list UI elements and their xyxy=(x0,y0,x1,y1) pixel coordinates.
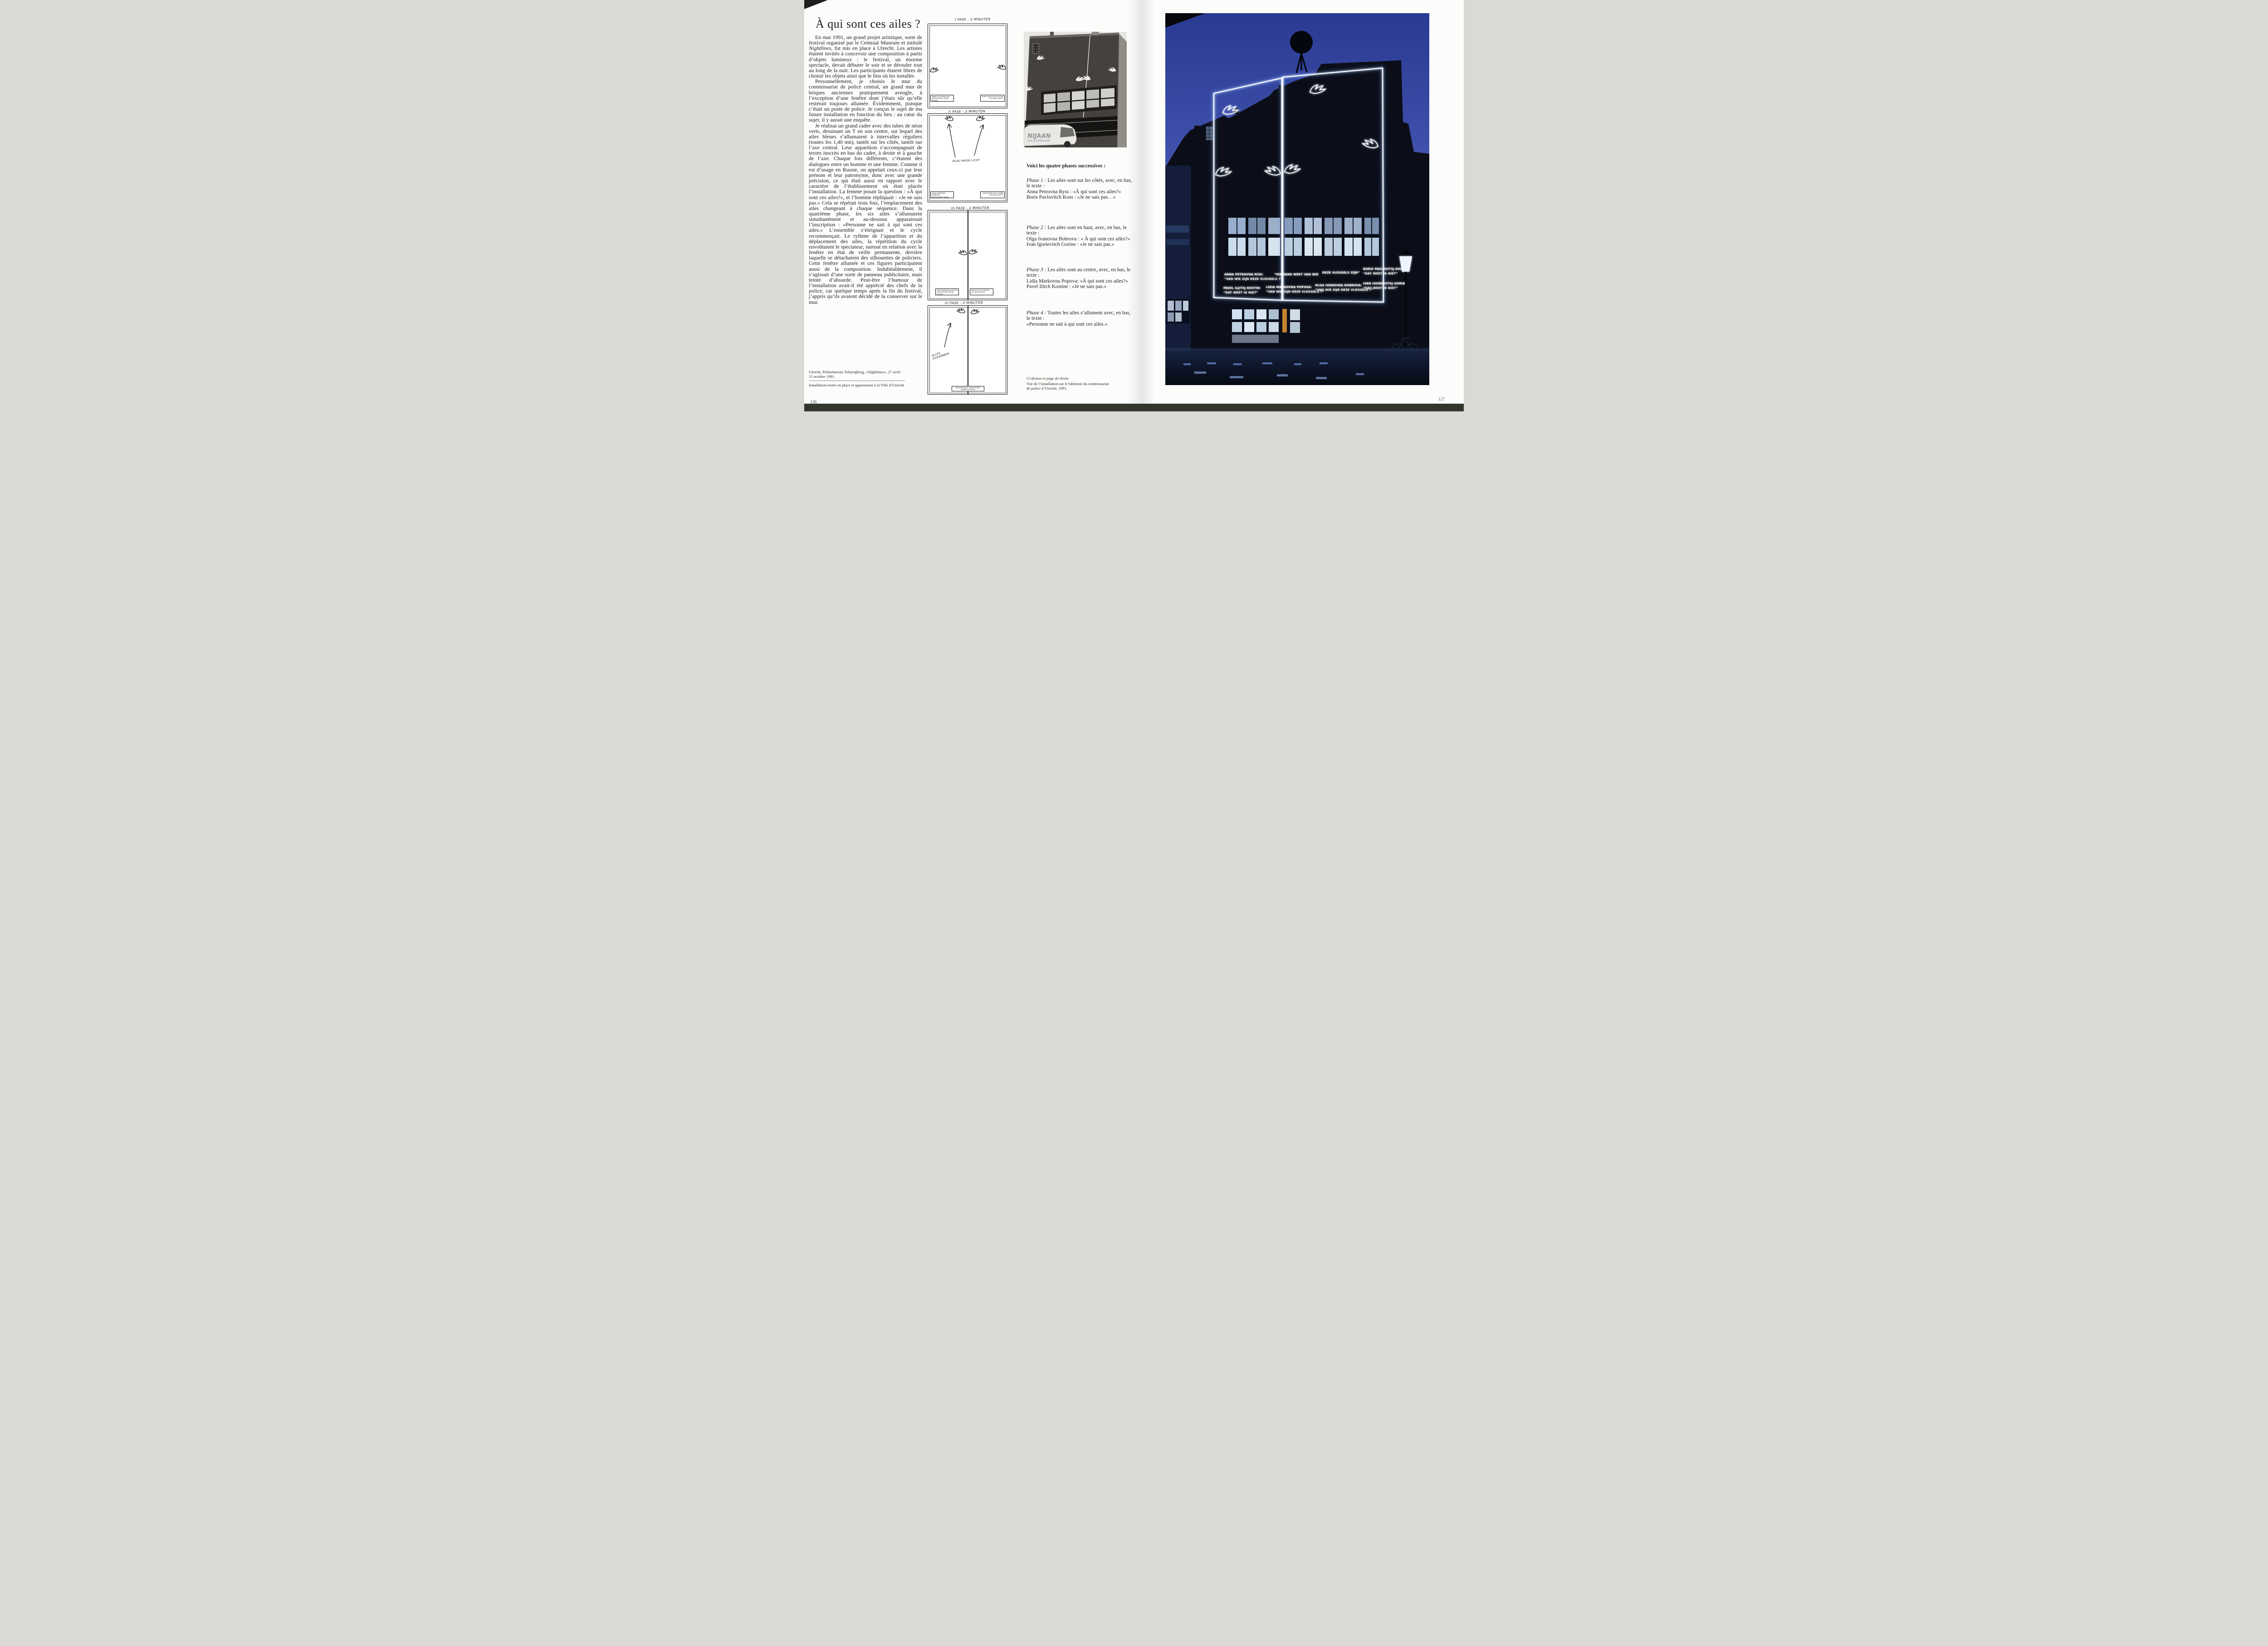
scan-corner xyxy=(804,0,828,9)
sketch2-sign-left: OLGA IVANOVNA BOBROVA WEM GEHÖRT DIESE F… xyxy=(930,191,954,198)
article-paragraph: Je réalisai un grand cadre avec des tube… xyxy=(809,123,922,305)
sketch2-frame: BLAU NEON LICHT OLGA IVANOVNA BOBROVA WE… xyxy=(928,113,1007,202)
phase-line: Lidia Markovna Popova: «À qui sont ces a… xyxy=(1026,278,1134,284)
credit-line: Utrecht, Politiebureau Tolstergbrug, «Ni… xyxy=(809,370,905,381)
phase-2: Phase 2 : Les ailes sont en haut, avec, … xyxy=(1026,225,1134,248)
article-paragraph: Personnellement, je choisis le mur du co… xyxy=(809,78,922,122)
sketch4-center-axis xyxy=(968,306,968,394)
wing-icon xyxy=(976,116,985,121)
phases-heading: Voici les quatre phases successives : xyxy=(1026,163,1134,169)
phase-3: Phase 3 : Les ailes sont au centre, avec… xyxy=(1026,267,1134,290)
sketch4-sign-center: NIEMAND WEIS, WEM GEHÖRT DIESEN FLÜGELN xyxy=(952,386,984,391)
van-sub-text: LEM LICHTREKLAME xyxy=(1027,140,1050,142)
wing-icon xyxy=(971,309,980,314)
caption-lead: Ci-dessus et page de droite xyxy=(1026,376,1110,381)
sketch4-frame: ALLES ZUSAMMEN NIEMAND WEIS, WEM GEHÖRT … xyxy=(928,305,1007,395)
sign-line: WEM GEHÖRT DIESE FLÜGEL xyxy=(932,196,953,198)
phase-line: «Personne ne sait à qui sont ces ailes.» xyxy=(1026,322,1134,327)
page-title: À qui sont ces ailes ? xyxy=(816,17,920,31)
sign-line: NIEMAND WEIS, WEM GEHÖRT DIESEN FLÜGELN xyxy=(953,387,983,391)
scan-edge xyxy=(804,404,1464,411)
sketch3-center-axis xyxy=(968,210,968,300)
sign-line: ICH WEISS NICHT xyxy=(982,194,1003,196)
phase-label: Phase 2 : xyxy=(1026,225,1046,230)
orange-doorway xyxy=(1282,309,1287,332)
wing-icon xyxy=(956,308,965,313)
phases-column: Voici les quatre phases successives : Ph… xyxy=(1026,163,1134,169)
sketch1-sign-right: BORIS PAVLOVITSCH KOSS ICH WEISS NICHT xyxy=(980,95,1005,102)
bw-small-window xyxy=(1033,44,1039,54)
sign-line: WEM GEHÖRT DIESE FLÜGEL xyxy=(932,98,953,102)
sign-text: DEZE VLEUGELS ZIJN” xyxy=(1322,271,1360,274)
street-ground xyxy=(1165,348,1429,385)
article-text: En mai 1991, un grand projet artistique,… xyxy=(809,34,922,305)
wing-icon xyxy=(930,68,939,73)
chimney xyxy=(1194,126,1200,131)
wing-icon xyxy=(969,249,978,254)
window-band-upper xyxy=(1224,215,1381,259)
paragraph-text: , fut mis en place à Utrecht. Les artist… xyxy=(809,45,922,79)
sign-line: WEM GEHÖRT DIESE FLÜGEL xyxy=(937,291,958,295)
credits-block: Utrecht, Politiebureau Tolstergbrug, «Ni… xyxy=(809,370,905,389)
night-photo: ANNA PETROVNA RISS:“VAN WIE ZIJN DEZE VL… xyxy=(1165,13,1429,385)
bw-photo: NIJAAN LEM LICHTREKLAME xyxy=(1024,32,1127,147)
phase-label: Phase 4 : xyxy=(1026,310,1046,316)
sketch2-sign-right: IVAN IGORIEVITCH GORIN ICH WEISS NICHT xyxy=(980,191,1005,198)
sketch3-frame: LIDA MARKOVNA POPOVA WEM GEHÖRT DIESE FL… xyxy=(928,210,1007,300)
page-number-right: 127 xyxy=(1438,397,1445,402)
phase-line: Anna Petrovna Ryss : «À qui sont ces ail… xyxy=(1026,189,1134,195)
sketch4-annotation: ALLES ZUSAMMEN xyxy=(931,348,953,361)
page-gutter xyxy=(1127,0,1154,404)
phase-4: Phase 4 : Toutes les ailes s’allument av… xyxy=(1026,310,1134,327)
sketch1-frame: ANNA PETROVNA RISS WEM GEHÖRT DIESE FLÜG… xyxy=(928,24,1007,108)
sign-line: ICH WEISS NICHT xyxy=(982,98,1003,99)
phase-line: Pavel Ilitch Kostine : «Je ne sais pas.» xyxy=(1026,284,1134,289)
sign-line: ICH WEISS NICHT xyxy=(971,291,992,293)
phase-label: Phase 3 : xyxy=(1026,267,1046,273)
sketch4-label: IV PASE - 2 MINUTEN xyxy=(945,301,983,305)
sketch3-sign-right: PAVEL ILYITCH KOSTIN ICH WEISS NICHT xyxy=(970,288,993,295)
wing-icon xyxy=(997,65,1006,70)
phase-line: Boris Pavlovitch Koss : «Je ne sais pas…… xyxy=(1026,195,1134,200)
small-lit-window xyxy=(1205,126,1213,141)
sign-text: “NIEMAND WEET VAN WIE xyxy=(1274,273,1319,276)
sketch1-label: I PASE - 2 MINUTEN xyxy=(955,17,991,21)
bw-van: NIJAAN LEM LICHTREKLAME xyxy=(1024,123,1076,147)
wing-icon xyxy=(944,116,953,121)
phase-1: Phase 1 : Les ailes sont sur les côtés, … xyxy=(1026,178,1134,200)
caption-text: Vue de l’installation sur le bâtiment du… xyxy=(1026,381,1110,391)
bw-roof-object xyxy=(1050,32,1054,35)
phase-line: Ivan Igorievitch Gorine : «Je ne sais pa… xyxy=(1026,242,1134,247)
bw-roof-lamp xyxy=(1092,32,1099,35)
sketch2-annotation: BLAU NEON LICHT xyxy=(953,159,980,163)
sketch3-sign-left: LIDA MARKOVNA POPOVA WEM GEHÖRT DIESE FL… xyxy=(935,288,959,295)
article-paragraph: En mai 1991, un grand projet artistique,… xyxy=(809,34,922,78)
book-spread: À qui sont ces ailes ? En mai 1991, un g… xyxy=(804,0,1464,411)
annotation-arrows xyxy=(943,122,993,158)
sign-line: OLGA IVANOVNA BOBROVA xyxy=(932,192,953,196)
photo-caption: Ci-dessus et page de droite Vue de l’ins… xyxy=(1026,376,1110,391)
van-brand-text: NIJAAN xyxy=(1027,133,1051,140)
sketch1-sign-left: ANNA PETROVNA RISS WEM GEHÖRT DIESE FLÜG… xyxy=(930,95,954,102)
annotation-arrow xyxy=(941,321,954,348)
phase-label: Phase 1 : xyxy=(1026,178,1046,183)
wing-icon xyxy=(958,250,967,255)
phase-line: Olga Ivanovna Bobrova : « À qui sont ces… xyxy=(1026,236,1134,242)
credit-line: Installation restée en place et apparten… xyxy=(809,383,905,387)
paragraph-text: En mai 1991, un grand projet artistique,… xyxy=(809,34,922,46)
